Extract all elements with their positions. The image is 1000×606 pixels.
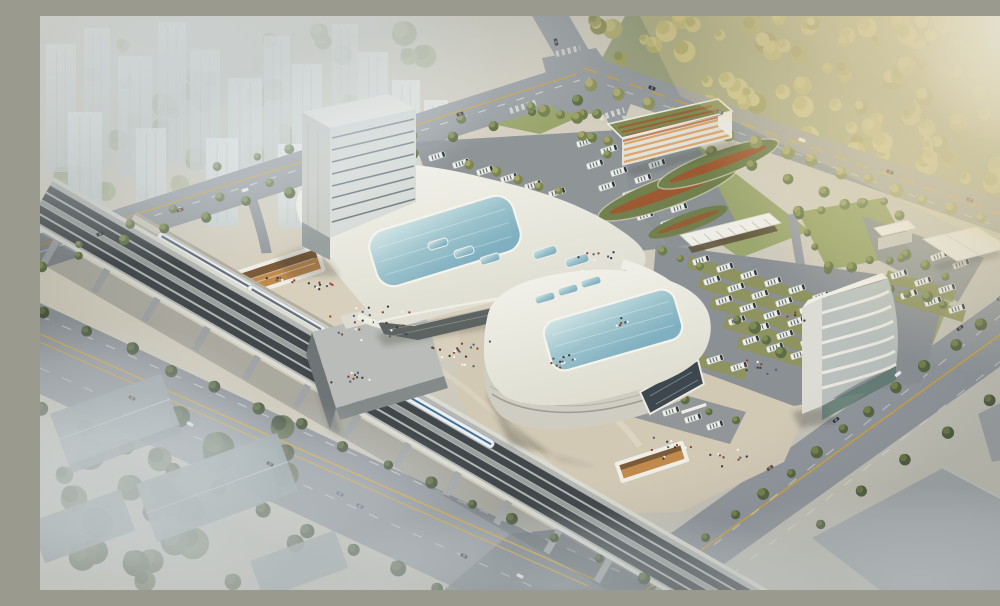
architectural-rendering — [40, 16, 1000, 590]
atmosphere — [40, 16, 1000, 590]
vignette — [40, 16, 1000, 590]
scene-root — [40, 16, 1000, 590]
